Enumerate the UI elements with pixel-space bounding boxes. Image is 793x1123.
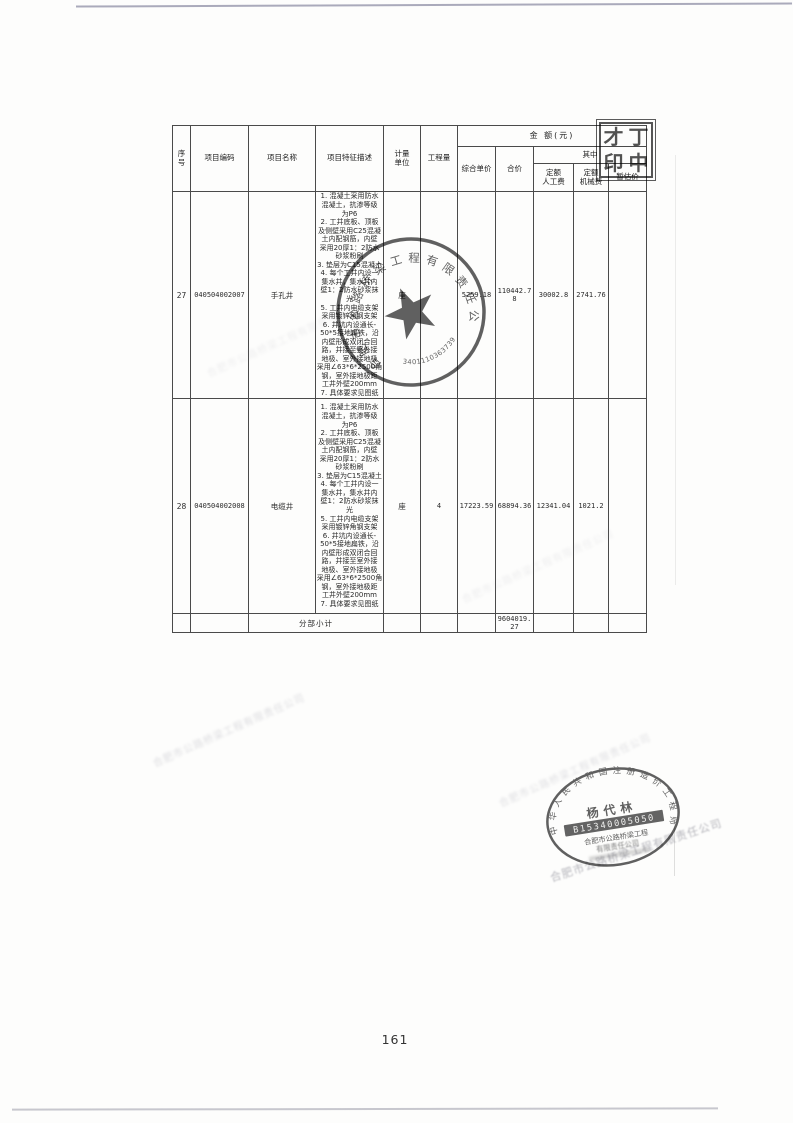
header-total: 合价 bbox=[496, 147, 534, 192]
header-unit: 计量 单位 bbox=[384, 126, 421, 192]
cell-unit-price: 17223.59 bbox=[458, 399, 496, 614]
cell-empty bbox=[609, 614, 647, 633]
cell-empty bbox=[384, 614, 421, 633]
table-row-28: 28 040504002008 电缆井 1. 混凝土采用防水 混凝土，抗渗等级 … bbox=[173, 399, 647, 614]
cell-seq: 27 bbox=[173, 192, 191, 399]
subtotal-row: 分部小计 9604019.27 bbox=[173, 614, 647, 633]
subtotal-total: 9604019.27 bbox=[496, 614, 534, 633]
company-seal: 合肥市公路桥梁工程有限责任公司 3401110363739 bbox=[331, 232, 491, 392]
print-stamp-char: 印 bbox=[604, 151, 624, 175]
cell-total: 68894.36 bbox=[496, 399, 534, 614]
scan-edge-line-top bbox=[76, 2, 792, 7]
cell-machine: 1021.2 bbox=[574, 399, 609, 614]
engineer-seal: 中华人民共和国注册造价工程师 杨代林 B15340005050 合肥市公路桥梁工… bbox=[543, 765, 683, 869]
company-seal-number: 3401110363739 bbox=[399, 334, 461, 374]
watermark-text: 合肥市公路桥梁工程有限责任公司 bbox=[150, 689, 307, 770]
star-icon bbox=[377, 278, 444, 344]
cell-labor: 12341.04 bbox=[534, 399, 574, 614]
cell-desc: 1. 混凝土采用防水 混凝土，抗渗等级 为P6 2. 工井底板、顶板 及侧壁采用… bbox=[316, 399, 384, 614]
print-status-stamp: 才 丁 印 中 bbox=[596, 119, 656, 181]
print-stamp-char: 中 bbox=[629, 151, 649, 175]
scan-edge-line-bottom bbox=[12, 1107, 718, 1110]
cell-name: 电缆井 bbox=[249, 399, 316, 614]
cell-code: 040504002008 bbox=[191, 399, 249, 614]
cell-machine: 2741.76 bbox=[574, 192, 609, 399]
header-unit-price: 综合单价 bbox=[458, 147, 496, 192]
cell-total: 110442.78 bbox=[496, 192, 534, 399]
print-stamp-characters: 才 丁 印 中 bbox=[599, 122, 653, 178]
header-desc: 项目特征描述 bbox=[316, 126, 384, 192]
scanned-document-page: { "page": { "number": "161" }, "table": … bbox=[0, 0, 793, 1123]
cell-empty bbox=[191, 614, 249, 633]
cell-empty bbox=[458, 614, 496, 633]
cell-labor: 30002.8 bbox=[534, 192, 574, 399]
cell-empty bbox=[173, 614, 191, 633]
page-number: 161 bbox=[350, 1032, 440, 1047]
header-qty: 工程量 bbox=[421, 126, 458, 192]
cell-unit: 座 bbox=[384, 399, 421, 614]
print-stamp-char: 丁 bbox=[629, 125, 649, 149]
cell-empty bbox=[421, 614, 458, 633]
cell-empty bbox=[534, 614, 574, 633]
cell-qty: 4 bbox=[421, 399, 458, 614]
header-seq: 序 号 bbox=[173, 126, 191, 192]
cell-provisional bbox=[609, 192, 647, 399]
header-code: 项目编码 bbox=[191, 126, 249, 192]
cell-name: 手孔井 bbox=[249, 192, 316, 399]
cell-provisional bbox=[609, 399, 647, 614]
cell-seq: 28 bbox=[173, 399, 191, 614]
cell-code: 040504002007 bbox=[191, 192, 249, 399]
svg-text:3401110363739: 3401110363739 bbox=[399, 334, 461, 374]
header-name: 项目名称 bbox=[249, 126, 316, 192]
paper-crease-line bbox=[675, 155, 676, 585]
header-labor: 定额 人工费 bbox=[534, 164, 574, 192]
print-stamp-char: 才 bbox=[604, 125, 624, 149]
cell-empty bbox=[574, 614, 609, 633]
subtotal-label: 分部小计 bbox=[249, 614, 384, 633]
